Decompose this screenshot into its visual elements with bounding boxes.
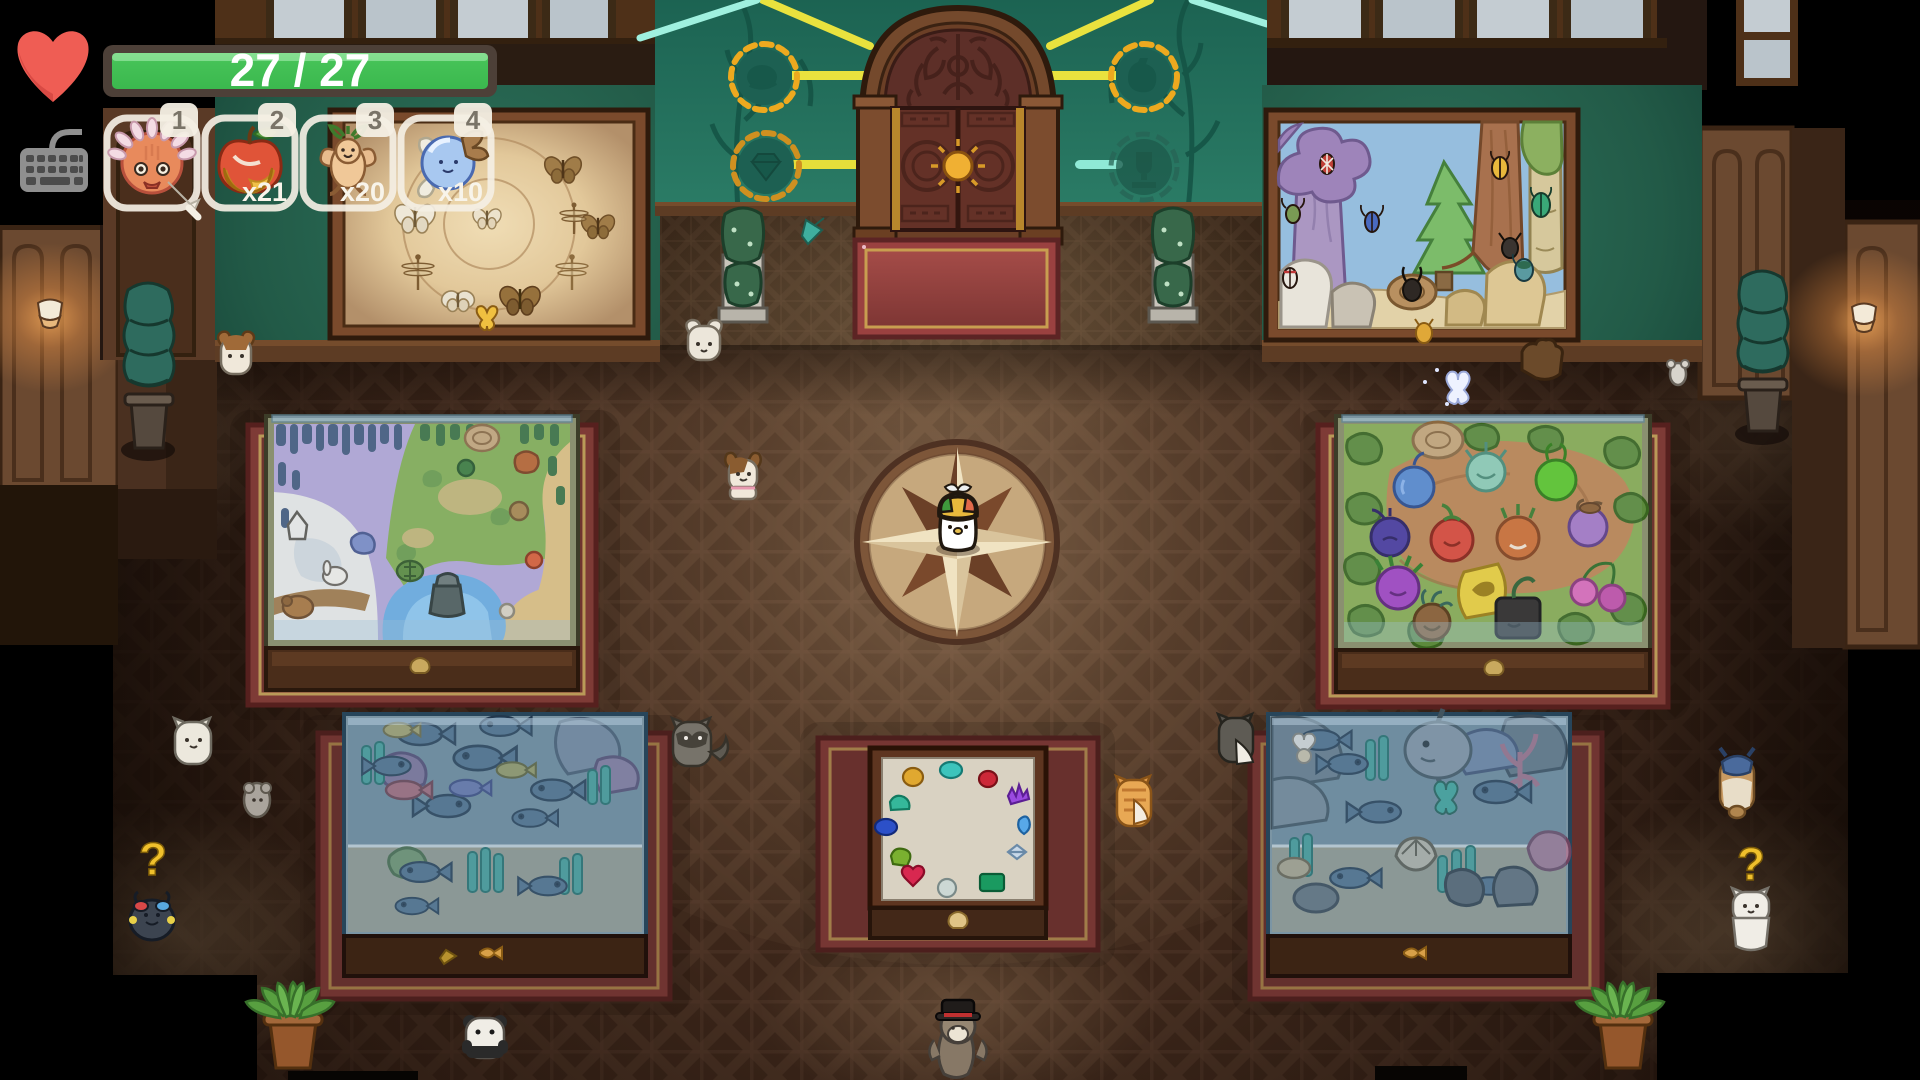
svg-text:2: 2	[270, 105, 284, 135]
svg-text:1: 1	[172, 105, 186, 135]
svg-text:x20: x20	[340, 177, 385, 207]
svg-text:?: ?	[139, 833, 167, 885]
svg-text:x10: x10	[438, 177, 483, 207]
svg-text:3: 3	[368, 105, 382, 135]
svg-text:x21: x21	[242, 177, 287, 207]
svg-text:27 / 27: 27 / 27	[230, 44, 371, 96]
svg-text:?: ?	[1737, 838, 1765, 890]
svg-text:4: 4	[466, 105, 481, 135]
